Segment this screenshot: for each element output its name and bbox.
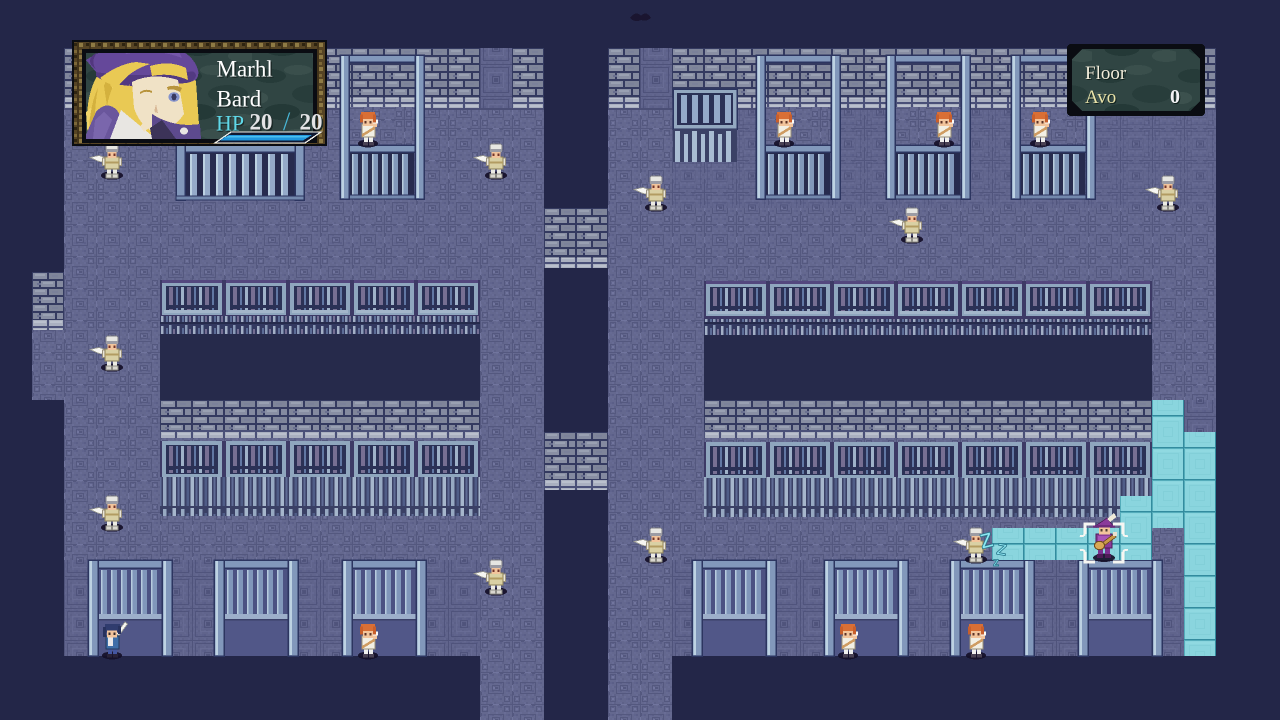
svg-text:Marhl: Marhl — [217, 57, 273, 82]
svg-text:20: 20 — [250, 110, 273, 135]
svg-text:z: z — [993, 555, 999, 569]
svg-text:0: 0 — [1170, 86, 1180, 108]
svg-text:Avo: Avo — [1085, 87, 1116, 108]
svg-text:Bard: Bard — [217, 87, 262, 112]
svg-text:Floor: Floor — [1085, 63, 1127, 84]
svg-text:20: 20 — [300, 110, 323, 135]
